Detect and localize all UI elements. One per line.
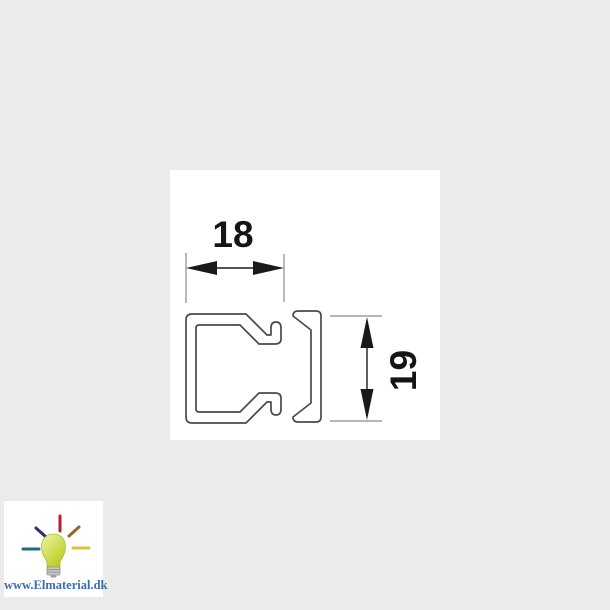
width-dimension-label: 18 <box>212 214 253 255</box>
height-arrow-down-icon <box>361 389 374 420</box>
height-dimension-label: 19 <box>383 350 424 391</box>
ray-top-right-icon <box>69 527 79 536</box>
bulb-base <box>47 567 60 575</box>
width-arrow-right-icon <box>253 261 284 275</box>
lightbulb-icon <box>4 501 103 579</box>
ray-top-left-icon <box>36 528 46 537</box>
brand-logo: www.Elmaterial.dk <box>4 501 103 597</box>
lid-profile <box>293 311 321 422</box>
drawing-panel: 18 19 <box>170 170 440 440</box>
brand-url: www.Elmaterial.dk <box>4 578 103 593</box>
base-channel-profile <box>186 314 281 423</box>
height-arrow-up-icon <box>361 317 374 348</box>
product-image: 18 19 <box>0 0 610 610</box>
trunking-cross-section-diagram: 18 19 <box>170 170 440 440</box>
width-arrow-left-icon <box>186 261 217 275</box>
bulb-glass <box>42 534 66 567</box>
